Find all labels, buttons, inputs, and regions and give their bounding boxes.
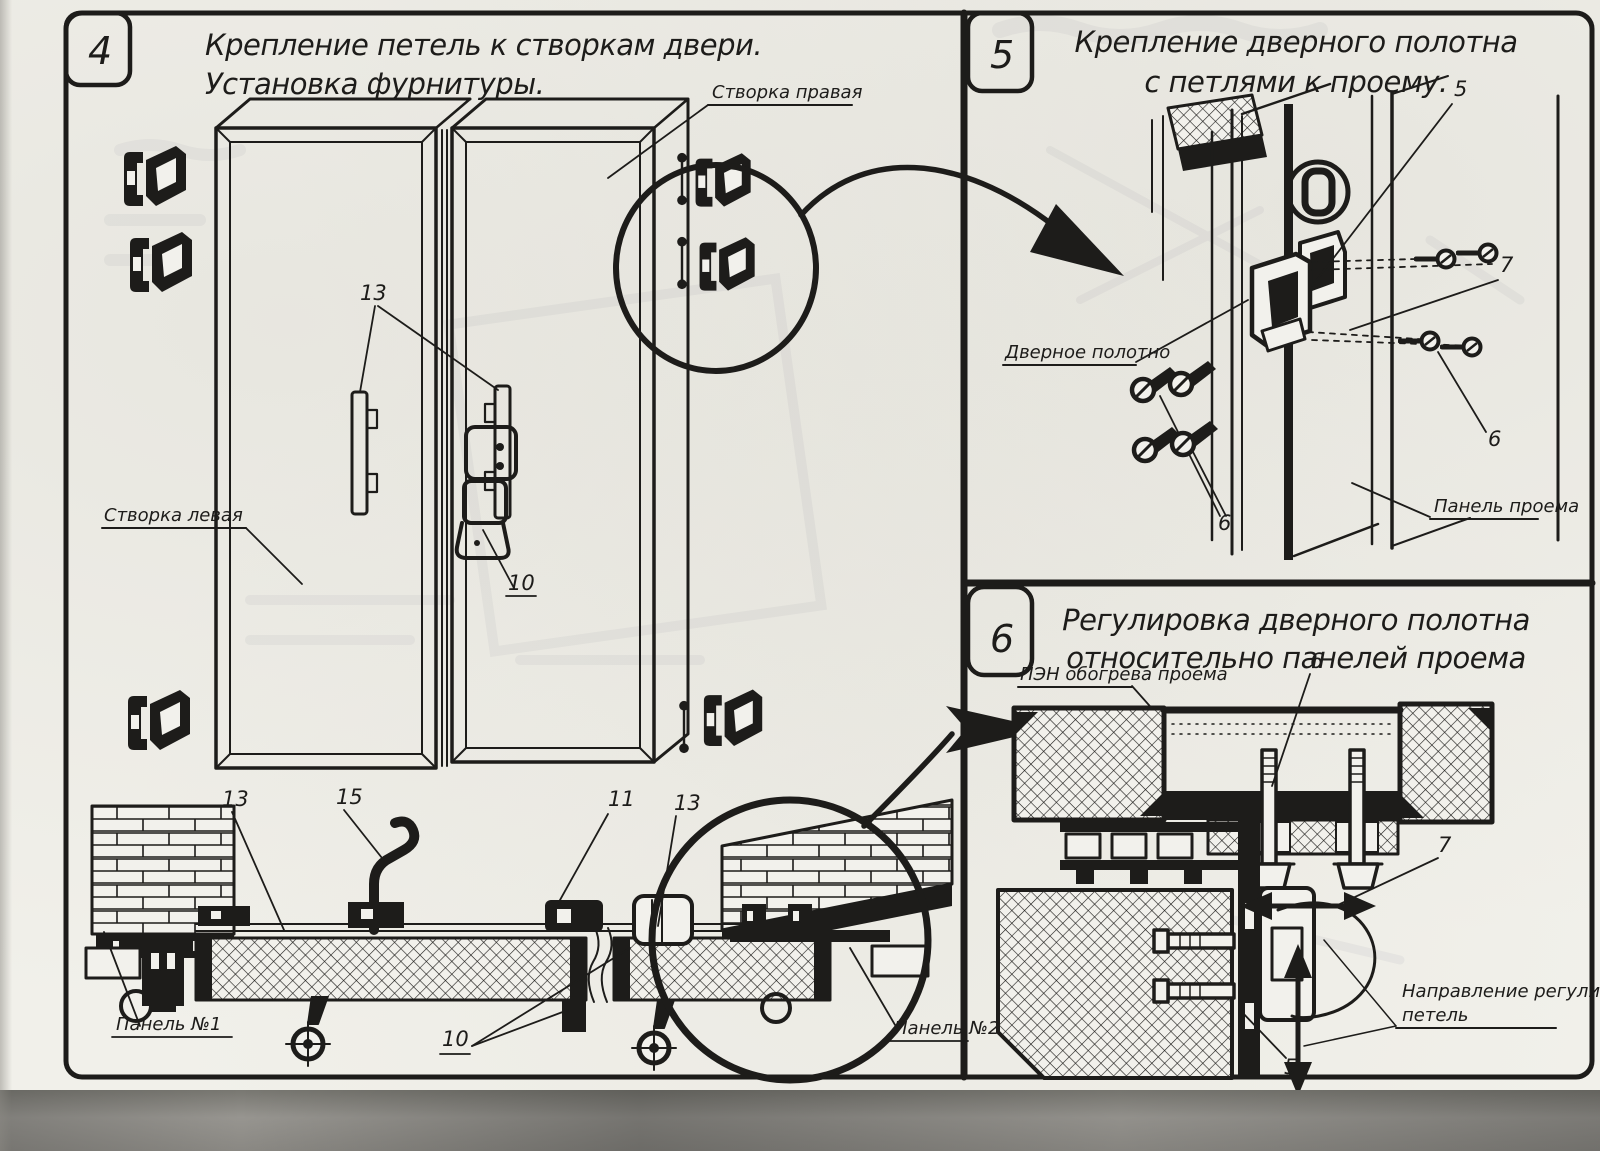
- label-heater: ПЭН обогрева проема: [1020, 664, 1228, 685]
- callout-sec-left-hinge: 13: [222, 787, 249, 811]
- zoom-arrow-to-panel5: [1030, 204, 1124, 276]
- hinge-icon: [704, 690, 762, 746]
- panel4-number: 4: [88, 29, 112, 73]
- label-panel1: Панель №1: [116, 1014, 221, 1035]
- callout-screws-right: 6: [1488, 427, 1501, 451]
- panel5-title-line1: Крепление дверного полотна: [1075, 25, 1518, 59]
- panel5-title-line2: с петлями к проему.: [1144, 65, 1447, 99]
- hinge-mounting-plates: [352, 386, 510, 518]
- label-left-leaf: Створка левая: [104, 505, 243, 526]
- edge-screws-icon: [677, 153, 687, 205]
- callout-bracket: 7: [1500, 253, 1514, 277]
- frame-hinge-drawing: [1003, 76, 1558, 560]
- panel4-title-line1: Крепление петель к створкам двери.: [205, 28, 762, 62]
- label-door-leaf: Дверное полотно: [1004, 342, 1170, 363]
- callout-hinge-bottom: 5: [1284, 1055, 1297, 1079]
- panel4-title-line2: Установка фурнитуры.: [205, 67, 544, 101]
- callout-sec-right-hinge: 13: [674, 791, 701, 815]
- screw-icon: [1442, 339, 1481, 356]
- panel6-number: 6: [990, 617, 1014, 661]
- roller-icon: [286, 996, 330, 1066]
- panel6-title-line1: Регулировка дверного полотна: [1062, 603, 1530, 637]
- hinge-icon: [124, 146, 186, 206]
- label-direction-line1: Направление регулировки: [1402, 981, 1600, 1002]
- hinge-icon: [696, 153, 751, 206]
- door-leaves-drawing: [216, 99, 688, 768]
- screw-icon: [1400, 333, 1439, 350]
- panel6: Регулировка дверного полотна относительн…: [998, 603, 1600, 1096]
- callout-screws-left: 6: [1218, 511, 1231, 535]
- hinge-icon: [128, 690, 190, 750]
- screw-icon: [1170, 361, 1216, 395]
- edge-screws-icon: [677, 237, 687, 289]
- callout-handle: 15: [336, 785, 363, 809]
- callout-sec-lock-bottom: 10: [442, 1027, 469, 1051]
- label-panel2: Панель №2: [894, 1018, 999, 1039]
- screw-icon: [1416, 251, 1455, 268]
- callout-lock: 10: [508, 571, 535, 595]
- callout-hinge: 5: [1454, 77, 1467, 101]
- label-right-leaf: Створка правая: [712, 82, 863, 103]
- lock-section: [545, 900, 603, 932]
- page-left-edge-shadow: [0, 0, 12, 1151]
- label-opening-panel: Панель проема: [1434, 496, 1579, 517]
- hinge-icon: [130, 232, 192, 292]
- label-direction-line2: петель: [1402, 1005, 1469, 1026]
- callout-hinge-plates: 13: [360, 281, 387, 305]
- callout-bolt: 6: [1310, 649, 1323, 673]
- panel4: Крепление петель к створкам двери. Устан…: [86, 28, 1124, 1080]
- callout-hinge-side: 7: [1438, 833, 1452, 857]
- scanned-assembly-drawing: 4 5 6 Крепление петель к створкам двери.…: [0, 0, 1600, 1151]
- callout-sec-lock: 11: [608, 787, 635, 811]
- panel5-number: 5: [990, 33, 1014, 77]
- drawing-canvas: 4 5 6 Крепление петель к створкам двери.…: [0, 0, 1600, 1151]
- scanner-edge: [0, 1090, 1600, 1151]
- adjustment-drawing: [998, 674, 1556, 1096]
